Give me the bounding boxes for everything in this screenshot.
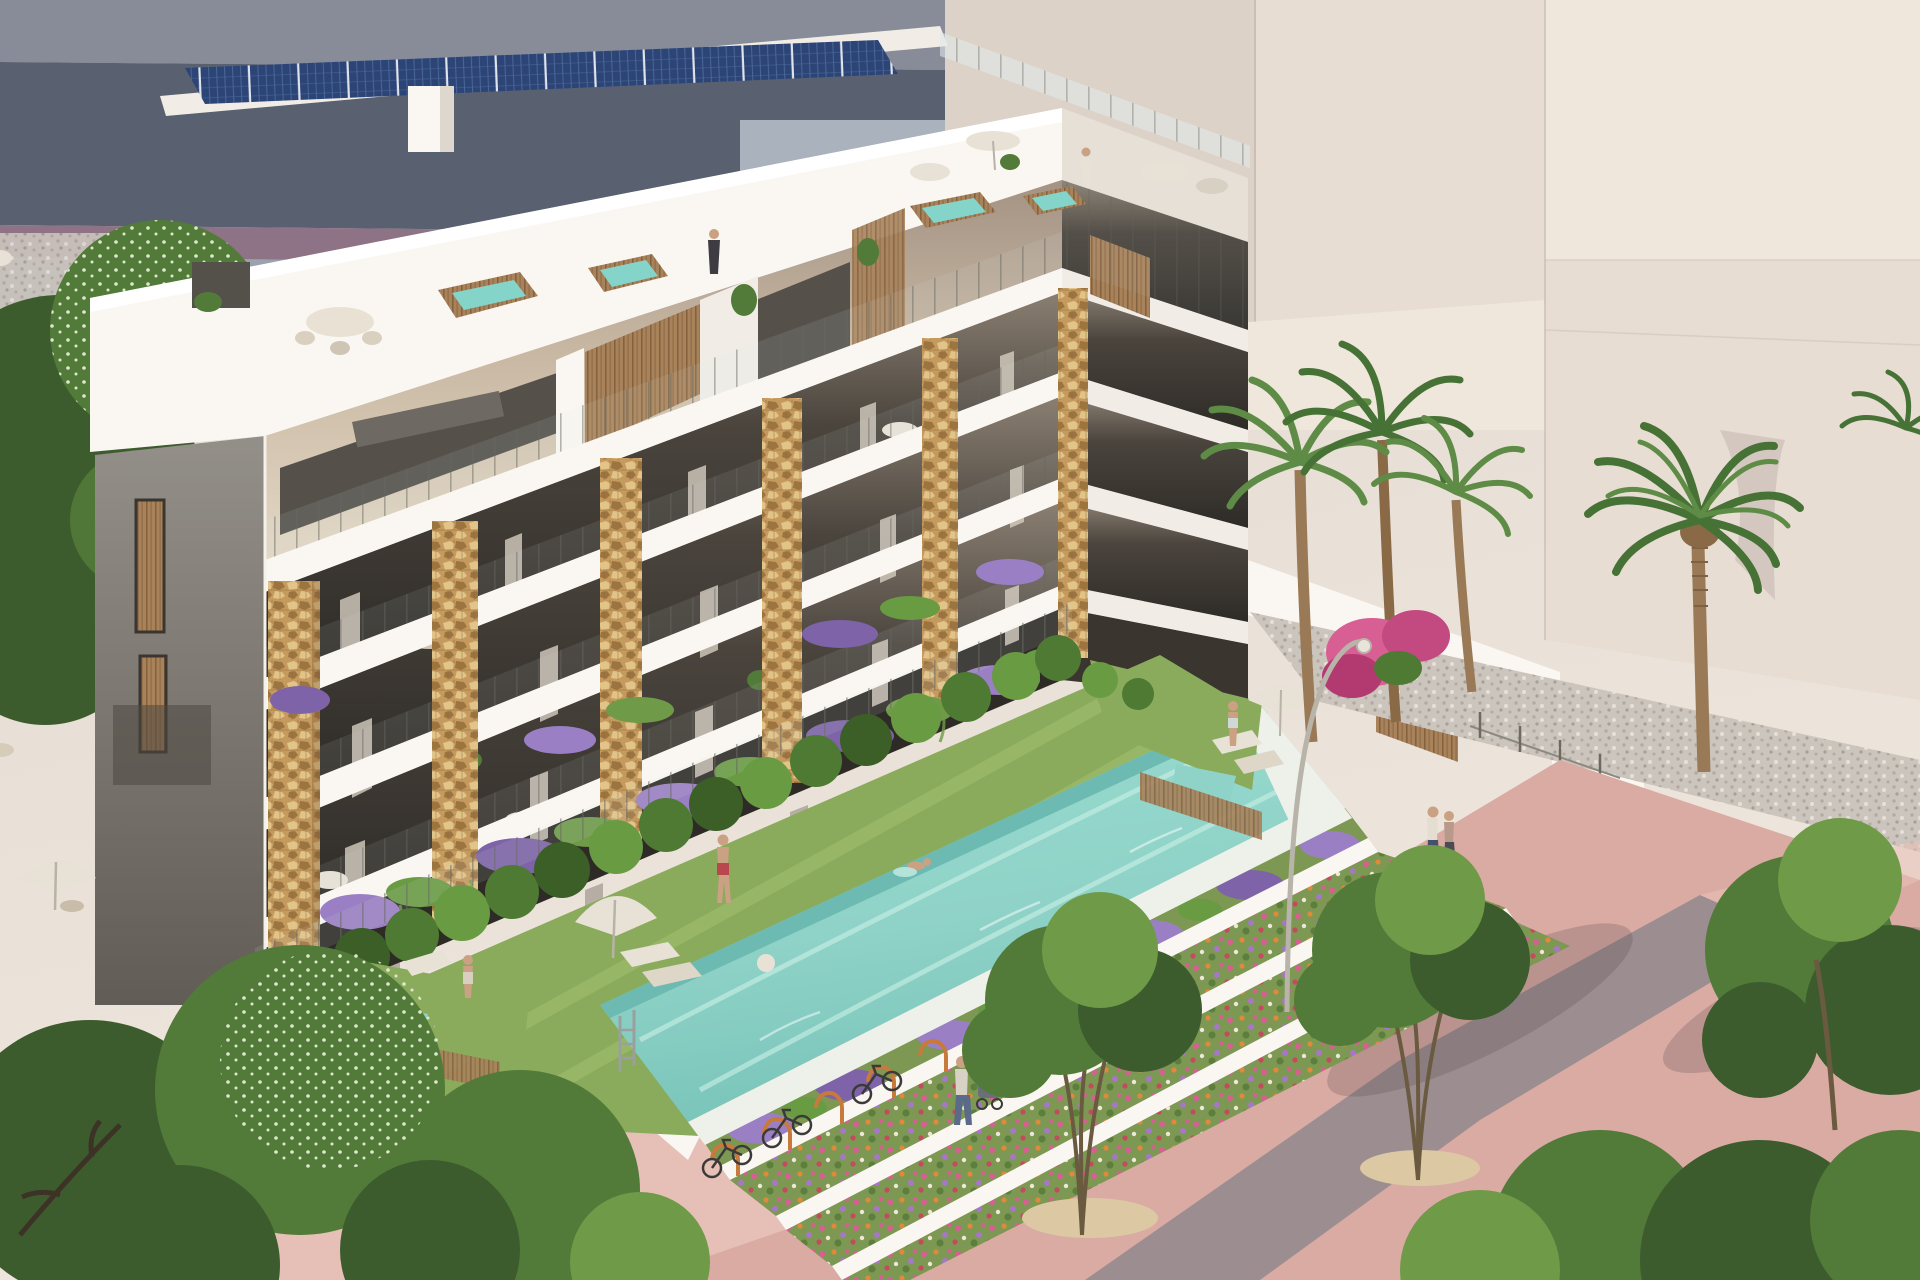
penthouse-resident xyxy=(708,229,720,274)
roof-table xyxy=(1196,178,1228,194)
tree-pit-1 xyxy=(1022,1198,1158,1238)
penthouse-plant-2 xyxy=(857,238,879,266)
penthouse-plant-1 xyxy=(731,284,757,316)
dining-chair-3 xyxy=(330,341,350,355)
fascia-window-plant xyxy=(194,292,222,312)
end-window-1 xyxy=(136,500,164,632)
right-end-face xyxy=(1062,108,1248,700)
end-wall-recess xyxy=(113,705,211,785)
lamp-head xyxy=(1357,639,1371,653)
ghost-right-face xyxy=(1255,0,1545,330)
dining-chair-1 xyxy=(295,331,315,345)
side-table xyxy=(757,954,775,972)
garden-hedge-ball-1 xyxy=(1082,662,1118,698)
architectural-rendering xyxy=(0,0,1920,1280)
end-wall xyxy=(95,436,265,1005)
dining-chair-2 xyxy=(362,331,382,345)
roof-chimney-1-shade xyxy=(440,86,454,152)
roof-sofa-2 xyxy=(1141,162,1189,182)
stone-pillar-6 xyxy=(1058,288,1088,658)
ghost-building-far-right xyxy=(1545,0,1920,700)
terrace-resident xyxy=(1081,148,1091,188)
rendering-stage xyxy=(0,0,1920,1280)
roof-plant xyxy=(1000,154,1020,170)
left-patio-chair xyxy=(60,900,84,912)
far-wall-top xyxy=(1545,0,1920,260)
garden-hedge-ball-2 xyxy=(1122,678,1154,710)
tall-palm-trunk xyxy=(1698,545,1704,772)
penthouse-dining-table xyxy=(306,307,374,337)
roof-sofa-1 xyxy=(910,163,950,181)
